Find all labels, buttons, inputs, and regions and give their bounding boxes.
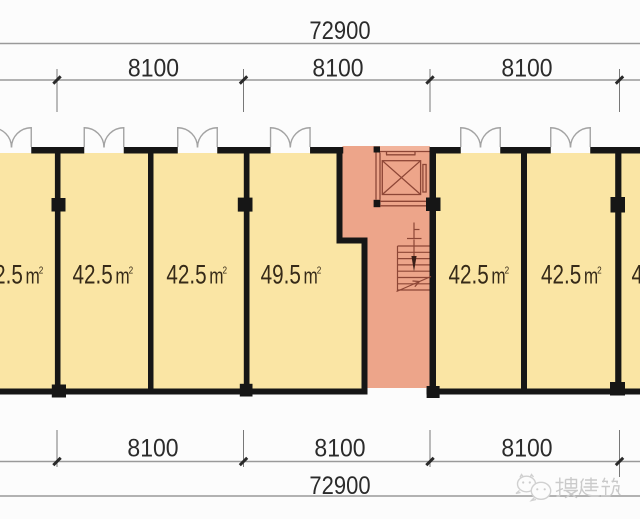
svg-text:8100: 8100 bbox=[314, 435, 365, 463]
svg-text:2: 2 bbox=[129, 263, 134, 275]
svg-text:49.5: 49.5 bbox=[261, 260, 301, 290]
svg-text:m: m bbox=[584, 265, 598, 290]
svg-text:8100: 8100 bbox=[312, 55, 363, 83]
svg-text:42.5: 42.5 bbox=[166, 260, 206, 290]
svg-text:2: 2 bbox=[597, 263, 602, 275]
svg-text:2: 2 bbox=[505, 263, 510, 275]
svg-text:72900: 72900 bbox=[309, 17, 370, 45]
svg-text:m: m bbox=[115, 265, 129, 290]
svg-text:2: 2 bbox=[317, 263, 322, 275]
svg-text:72900: 72900 bbox=[309, 472, 370, 500]
svg-text:8100: 8100 bbox=[127, 435, 178, 463]
svg-text:8100: 8100 bbox=[501, 55, 552, 83]
svg-text:2: 2 bbox=[223, 263, 228, 275]
svg-text:42.5: 42.5 bbox=[73, 260, 113, 290]
svg-text:m: m bbox=[25, 265, 39, 290]
svg-text:m: m bbox=[209, 265, 223, 290]
svg-text:42.5: 42.5 bbox=[541, 260, 581, 290]
svg-text:m: m bbox=[304, 265, 318, 290]
svg-text:42.5: 42.5 bbox=[0, 260, 23, 290]
svg-text:m: m bbox=[491, 265, 505, 290]
svg-text:42.5: 42.5 bbox=[449, 260, 489, 290]
svg-text:2: 2 bbox=[39, 263, 44, 275]
svg-text:8100: 8100 bbox=[128, 55, 179, 83]
svg-text:42.5: 42.5 bbox=[632, 260, 640, 290]
svg-text:8100: 8100 bbox=[501, 435, 552, 463]
